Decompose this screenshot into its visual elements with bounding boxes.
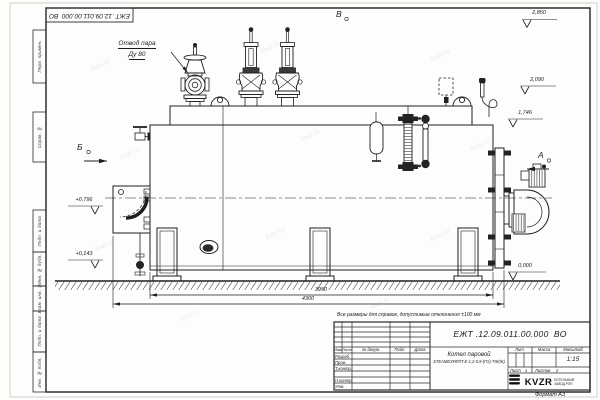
side-label-text: Инв. № дубл. (37, 254, 42, 284)
safety-valve (236, 27, 265, 106)
tb-doc-number: ЕЖТ .12.09.011.00.000 ВО (430, 322, 590, 347)
tb-col-izm: Изм. (334, 348, 342, 352)
view-marker-v: В (336, 10, 342, 19)
elevation-2090: 2,090 (519, 78, 555, 84)
boiler-drawing (55, 17, 560, 308)
control-sensor (439, 78, 497, 117)
kvzr-logo-icon (509, 374, 520, 385)
callout-steam-outlet-line1: Отвод пара (104, 41, 170, 48)
view-marker-b: Б (77, 143, 83, 152)
callout-steam-outlet-line2: Ду 80 (104, 52, 170, 59)
tb-row-approved: Утв. (335, 385, 345, 389)
tb-row-tcontrol: Т.контр. (335, 367, 352, 371)
tb-sheet-value: 1 (525, 369, 527, 373)
tb-sheets-label: Листов (535, 369, 550, 373)
corner-doc-number: ЕЖТ .12.09.011.00.000 ВО (46, 9, 133, 21)
tb-product-name-line1: Котел паровой (430, 352, 508, 358)
tb-row-developed: Разраб. (335, 355, 350, 359)
dimension-3950: 3950 (291, 288, 351, 294)
side-label-inv-dubl: Инв. № дубл. (33, 252, 46, 286)
kvzr-logo: KVZR КОТЕЛЬНЫЙ ЗАВОД РЭП (509, 374, 590, 390)
side-label-inv-podl: Инв. № подл. (33, 352, 46, 392)
callout-leader (171, 52, 188, 73)
rear-flange (488, 148, 511, 268)
side-label-text: Справ. № (37, 126, 42, 148)
side-label-text: Подп. и дата (37, 316, 42, 347)
elevation-1746: 1,746 (507, 111, 543, 117)
tb-col-doc: № докум. (352, 348, 390, 352)
steam-outlet-valve (181, 43, 209, 106)
tb-row-ncontrol: Н.контр. (335, 379, 353, 383)
elevation-2850: 2,850 (521, 11, 557, 17)
elevation-0000: 0,000 (507, 264, 543, 270)
kvzr-logo-caption: КОТЕЛЬНЫЙ ЗАВОД РЭП (554, 378, 574, 386)
side-label-text: Инв. № подл. (37, 357, 42, 388)
tb-scale-value: 1:15 (556, 357, 590, 364)
tb-product-name-line2: STEAMEXPERT-Е-1,2-0,9-(ГО)-ТЖ(Ж) (430, 360, 508, 364)
tb-col-date: Дата (410, 348, 430, 352)
view-marker-a: А (538, 151, 544, 160)
side-label-text: Перв. примен. (37, 40, 42, 72)
elevation-0796: +0,796 (66, 198, 102, 204)
vent-valve (133, 127, 150, 141)
blowdown-valve (135, 233, 145, 276)
dimension-4300: 4300 (278, 297, 338, 303)
lifting-lugs (211, 97, 471, 106)
side-label-text: Взам. инв. № (37, 283, 42, 314)
callout-text: Ду 80 (129, 51, 146, 60)
kvzr-caption-line2: ЗАВОД РЭП (554, 382, 574, 386)
tb-lit-label: Лит. (508, 348, 532, 352)
boiler-shell (150, 106, 493, 270)
tb-sheets-value: 2 (556, 369, 558, 373)
side-label-perv-primen: Перв. примен. (33, 30, 46, 83)
tb-mass-label: Масса (532, 348, 556, 352)
tb-col-sign: Подп. (390, 348, 410, 352)
callout-text: Отвод пара (118, 40, 155, 49)
front-smokebox (113, 186, 150, 233)
tb-scale-label: Масштаб (556, 348, 590, 352)
burner-fan (504, 164, 549, 234)
kvzr-logo-text: KVZR (525, 377, 552, 388)
tb-col-list: Лист (342, 348, 352, 352)
tb-row-checked: Пров. (335, 361, 346, 365)
side-label-text: Подп. и дата (37, 216, 42, 247)
elevation-0143: +0,143 (66, 252, 102, 258)
side-label-podp-data-1: Подп. и дата (33, 210, 46, 252)
drawing-sheet: kvzr.ru kvzr.ru kvzr.ru kvzr.ru kvzr.ru … (0, 0, 600, 400)
side-label-sprav-no: Справ. № (33, 112, 46, 162)
reference-note: Все размеры для справок, допустимые откл… (337, 313, 481, 318)
side-label-podp-data-2: Подп. и дата (33, 311, 46, 352)
tb-sheet-label: Лист (510, 369, 521, 373)
handhole-cover (200, 241, 218, 254)
side-label-vzam-inv: Взам. инв. № (33, 286, 46, 311)
level-gauge-set (370, 106, 430, 171)
format-label: Формат А3 (510, 393, 590, 399)
